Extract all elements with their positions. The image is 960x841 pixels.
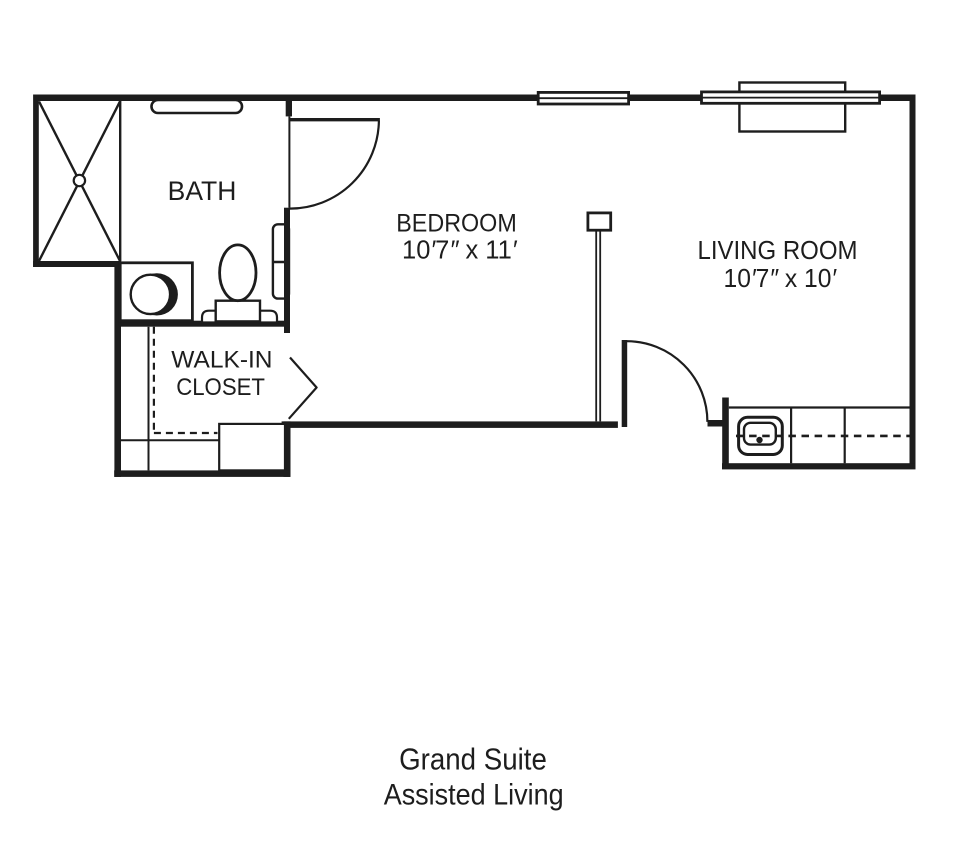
svg-text:Grand Suite: Grand Suite — [399, 741, 547, 776]
svg-text:CLOSET: CLOSET — [176, 374, 265, 401]
svg-text:BATH: BATH — [168, 176, 237, 206]
svg-text:WALK-IN: WALK-IN — [171, 347, 272, 374]
svg-text:BEDROOM: BEDROOM — [396, 210, 517, 238]
svg-text:10′7″ x 11′: 10′7″ x 11′ — [402, 237, 518, 265]
svg-text:Assisted Living: Assisted Living — [384, 779, 564, 812]
svg-text:LIVING ROOM: LIVING ROOM — [698, 235, 858, 265]
svg-text:10′7″ x 10′: 10′7″ x 10′ — [724, 263, 838, 293]
